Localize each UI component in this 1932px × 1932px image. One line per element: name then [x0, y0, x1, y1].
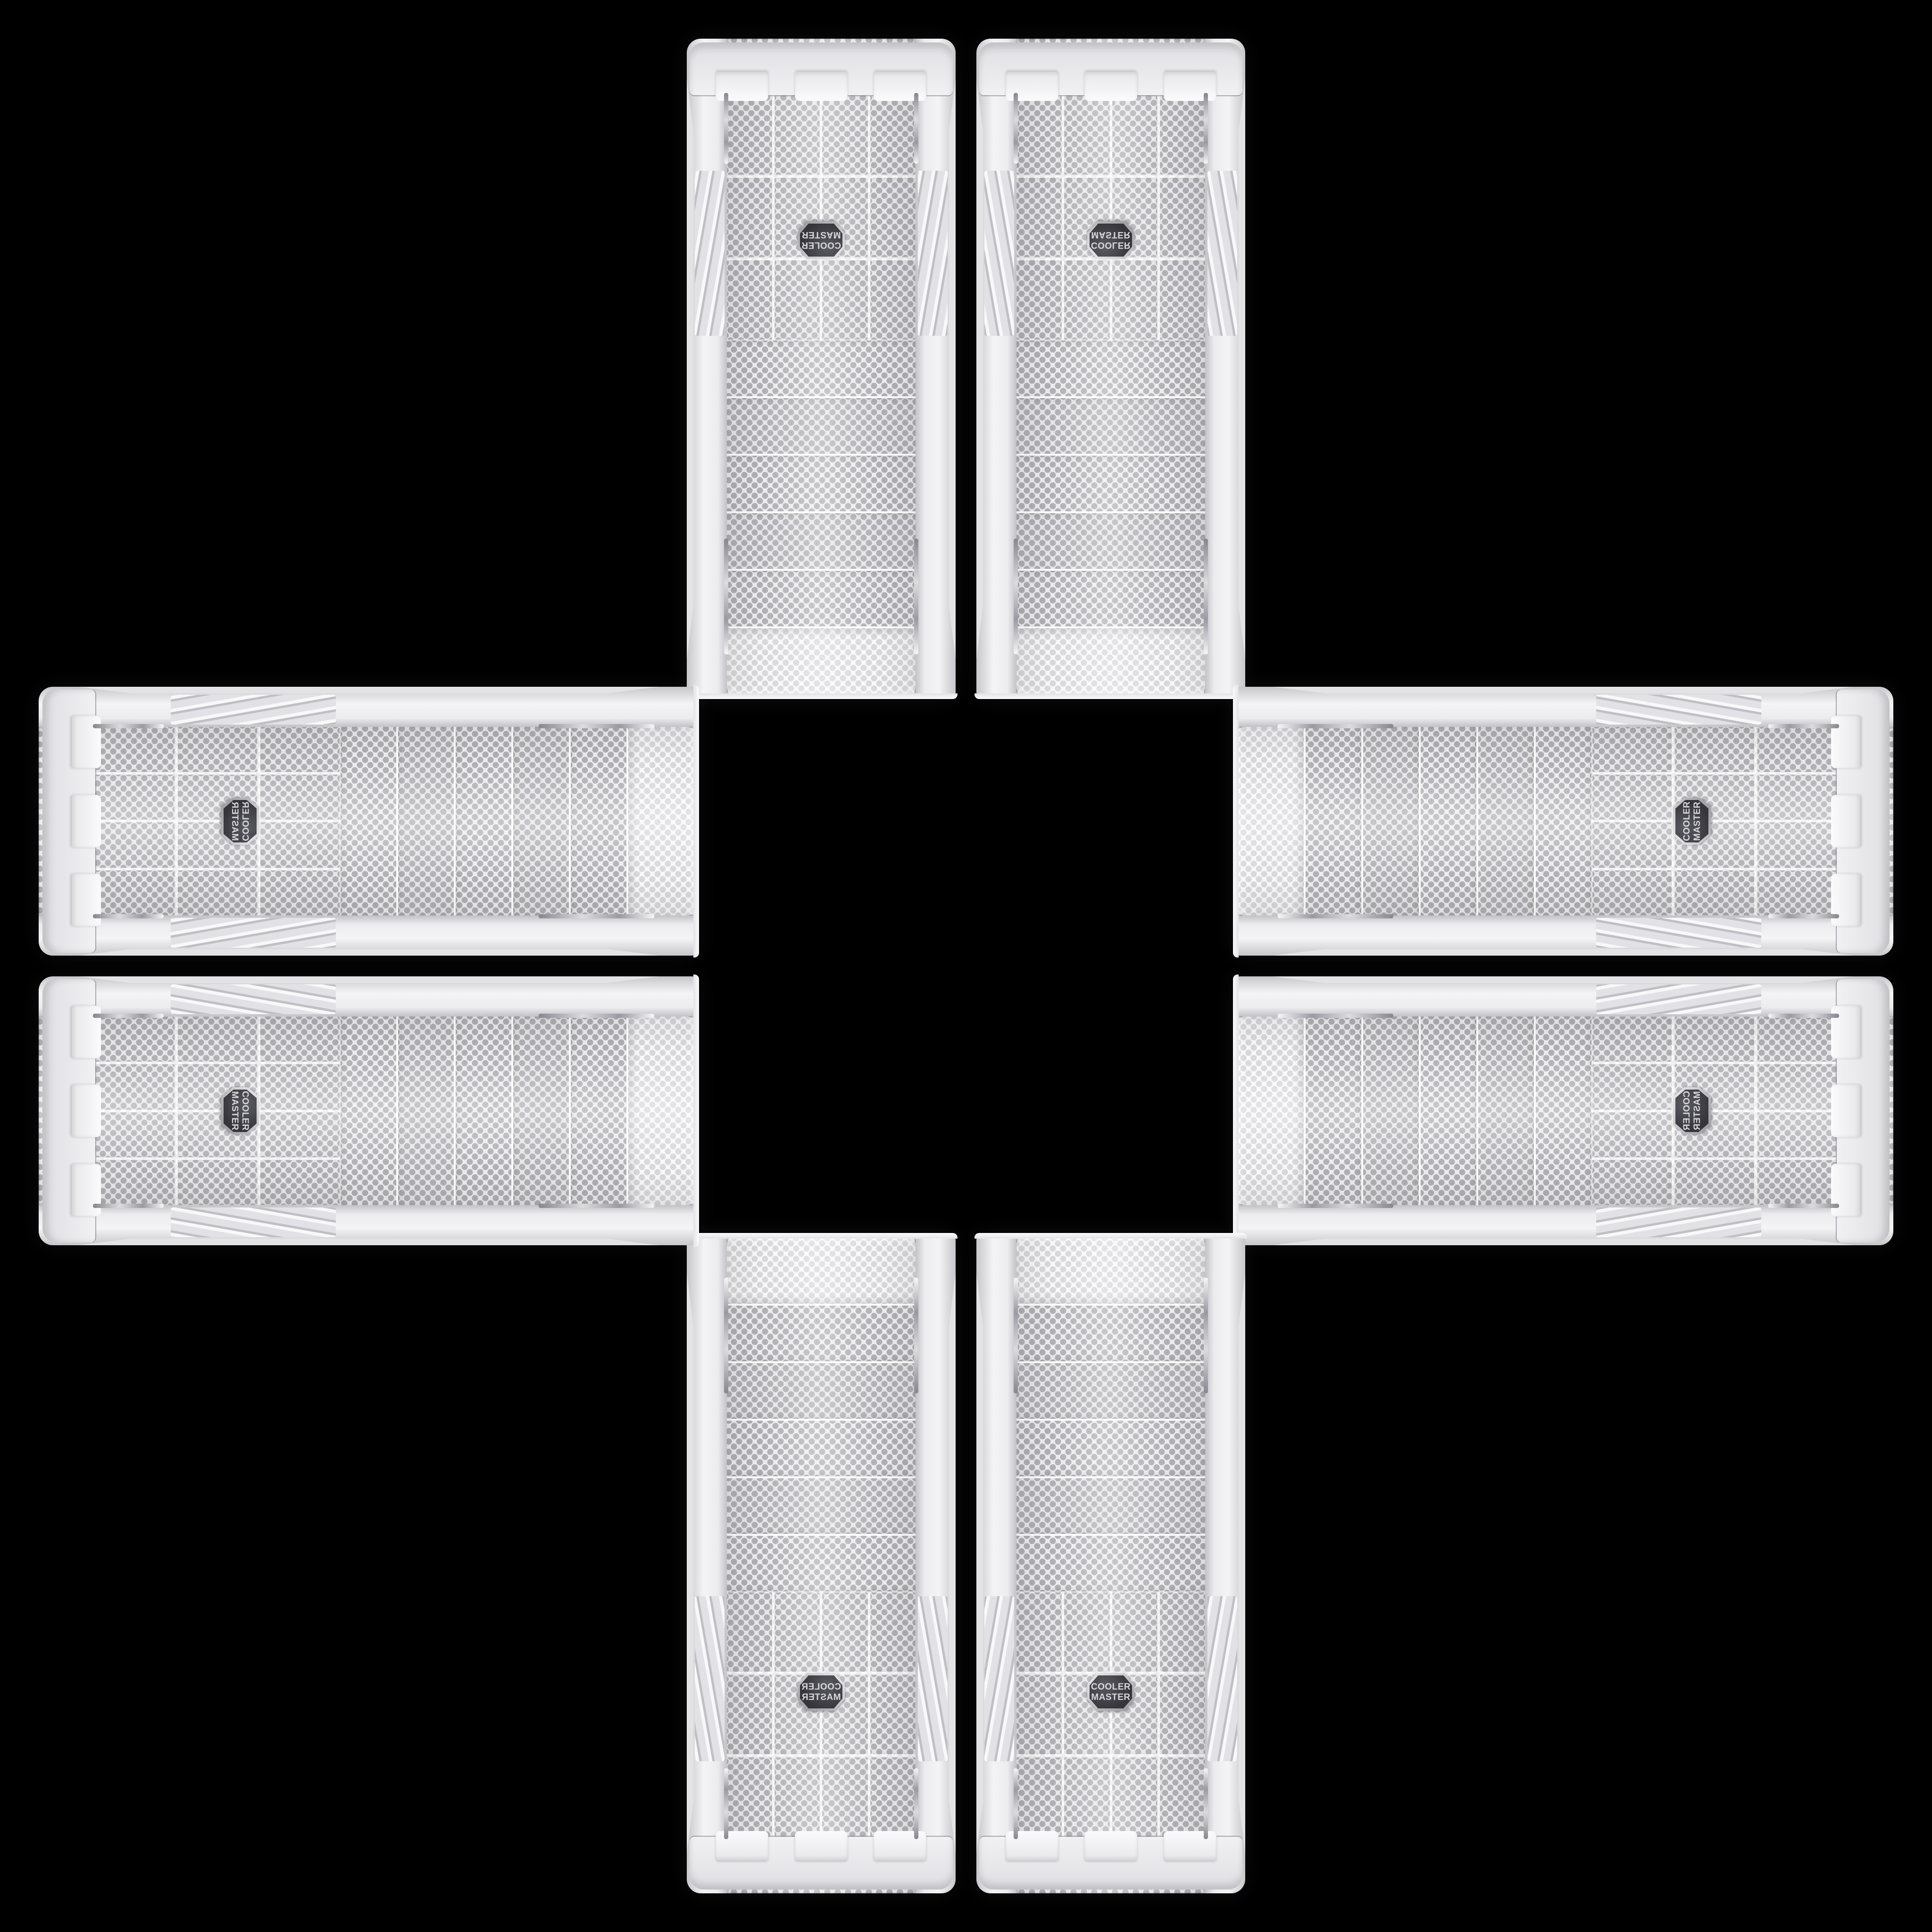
bay-grid-cell	[727, 1591, 772, 1672]
cap-tab	[1831, 874, 1860, 927]
bay-grid-cell	[870, 95, 916, 175]
grip-ribs-left	[1596, 918, 1761, 948]
mesh-field	[1233, 727, 1893, 916]
cooler-master-badge: COOLER MASTER	[1673, 1087, 1711, 1134]
bay-grid-cell	[823, 95, 868, 175]
drive-bay-band	[1361, 727, 1419, 916]
badge-face: COOLER MASTER	[224, 800, 257, 842]
bay-grid-cell	[823, 1757, 868, 1837]
chrome-accent	[1768, 724, 1839, 728]
drive-bay-band	[1016, 1419, 1205, 1476]
mesh-rolled-edge	[1233, 1016, 1304, 1205]
bay-grid-cell	[1757, 774, 1837, 820]
drive-bay-band	[1016, 571, 1205, 628]
chrome-accent	[93, 724, 164, 728]
cap-tab	[1831, 1164, 1860, 1216]
drive-bay-band	[513, 1016, 571, 1205]
badge-text-line1: COOLER	[241, 1091, 250, 1131]
mesh-rolled-edge	[727, 1233, 916, 1304]
inner-edge-strip	[974, 693, 1247, 699]
drive-bay-band	[1534, 727, 1591, 916]
drive-bay-band	[1476, 727, 1534, 916]
chrome-accent	[539, 914, 654, 918]
inner-edge-strip	[974, 1233, 1247, 1239]
bay-grid-cell	[260, 1160, 341, 1205]
bay-grid-cell	[823, 260, 868, 341]
bay-grid-cell	[1016, 178, 1062, 258]
drive-bay-band	[571, 727, 628, 916]
chrome-accent	[93, 1014, 164, 1018]
mesh-field	[39, 1016, 699, 1205]
mesh-bay-grid	[95, 1016, 341, 1205]
drive-bay-band	[727, 513, 916, 571]
bay-grid-cell	[95, 1160, 175, 1205]
cap-tab	[874, 72, 927, 101]
badge-text-line2: MASTER	[1091, 231, 1130, 240]
chrome-accent	[914, 539, 918, 654]
drive-bay-band	[727, 1304, 916, 1361]
bay-grid-cell	[870, 260, 916, 341]
bay-grid-cell	[1591, 727, 1672, 772]
inner-edge-strip	[685, 1233, 958, 1239]
cooler-master-badge: COOLER MASTER	[221, 1087, 259, 1134]
badge-face: COOLER MASTER	[1675, 1090, 1708, 1132]
badge-text-line1: COOLER	[801, 1682, 841, 1691]
drive-bay-band	[727, 571, 916, 628]
chrome-accent	[1278, 1204, 1393, 1208]
mesh-bay-grid	[95, 727, 341, 916]
chrome-accent	[914, 1278, 918, 1393]
chrome-accent	[1768, 914, 1839, 918]
badge-face: COOLER MASTER	[1675, 800, 1708, 842]
cap-tab	[1164, 1831, 1216, 1860]
bay-grid-cell	[1757, 870, 1837, 916]
scene-root: COOLER MASTER	[0, 0, 1932, 1932]
mesh-bands	[727, 341, 916, 628]
badge-text-line2: MASTER	[231, 801, 240, 841]
bay-grid-cell	[178, 1016, 258, 1062]
bay-grid-cell	[1674, 1016, 1754, 1062]
grip-ribs-right	[695, 171, 724, 336]
bay-grid-cell	[178, 1160, 258, 1205]
chrome-accent	[914, 1768, 918, 1839]
mesh-bay-grid	[1016, 1591, 1205, 1837]
bay-grid-cell	[1112, 1591, 1158, 1672]
bay-grid-cell	[727, 1757, 772, 1837]
drive-bay-band	[1016, 1476, 1205, 1534]
drive-bay-band	[398, 727, 456, 916]
chrome-accent	[1278, 724, 1393, 728]
bay-grid-cell	[1160, 178, 1205, 258]
bay-grid-cell	[95, 1064, 175, 1109]
chrome-accent	[1278, 1014, 1393, 1018]
chrome-accent	[1278, 914, 1393, 918]
bay-grid-cell	[1674, 727, 1754, 772]
cap-tab	[1831, 795, 1860, 848]
bay-grid-cell	[95, 1016, 175, 1062]
bay-grid-cell	[1757, 727, 1837, 772]
mesh-rolled-edge	[1016, 1233, 1205, 1304]
case-front-panel-bottom-left: COOLER MASTER	[687, 1233, 956, 1893]
chrome-accent	[724, 1278, 728, 1393]
case-front-panel-right-lower: COOLER MASTER	[1233, 976, 1893, 1245]
cap-tab	[1831, 1084, 1860, 1137]
bay-grid-cell	[1112, 95, 1158, 175]
mesh-rolled-edge	[628, 727, 699, 916]
outer-cap	[42, 979, 95, 1242]
bay-grid-cell	[1112, 1757, 1158, 1837]
grip-ribs-right	[695, 1596, 724, 1761]
chrome-accent	[1014, 1768, 1018, 1839]
grip-ribs-right	[1596, 1207, 1761, 1237]
case-front-panel-right-upper: COOLER MASTER	[1233, 687, 1893, 956]
drive-bay-band	[1534, 1016, 1591, 1205]
bay-grid-cell	[95, 774, 175, 820]
badge-text-line2: MASTER	[801, 231, 841, 240]
mesh-bands	[1016, 341, 1205, 628]
drive-bay-band	[727, 1419, 916, 1476]
bay-grid-cell	[1160, 1674, 1205, 1754]
mesh-bands	[341, 727, 628, 916]
mesh-field	[1016, 1233, 1205, 1893]
drive-bay-band	[1016, 513, 1205, 571]
chrome-accent	[93, 914, 164, 918]
case-front-panel-left-upper: COOLER MASTER	[39, 687, 699, 956]
chrome-accent	[724, 1768, 728, 1839]
badge-text-line2: MASTER	[1091, 1693, 1130, 1702]
chrome-accent	[1014, 539, 1018, 654]
chrome-accent	[914, 93, 918, 164]
chrome-accent	[539, 1204, 654, 1208]
bay-grid-cell	[1016, 1757, 1062, 1837]
drive-bay-band	[727, 1361, 916, 1419]
drive-bay-band	[456, 727, 513, 916]
outer-cap	[979, 42, 1242, 95]
case-front-panel-bottom-right: COOLER MASTER	[976, 1233, 1245, 1893]
drive-bay-band	[1476, 1016, 1534, 1205]
drive-bay-band	[1016, 398, 1205, 456]
bay-grid-cell	[260, 823, 341, 868]
drive-bay-band	[1361, 1016, 1419, 1205]
bay-grid-cell	[823, 1591, 868, 1672]
grip-ribs-right	[1596, 695, 1761, 724]
mesh-bands	[341, 1016, 628, 1205]
outer-cap	[1837, 979, 1890, 1242]
bay-grid-cell	[1591, 774, 1672, 820]
bay-grid-cell	[260, 1016, 341, 1062]
bay-grid-cell	[178, 727, 258, 772]
mesh-field	[1233, 1016, 1893, 1205]
badge-text-line2: MASTER	[231, 1091, 240, 1130]
drive-bay-band	[727, 398, 916, 456]
cap-tab	[72, 874, 101, 927]
grip-ribs-left	[984, 171, 1014, 336]
drive-bay-band	[1419, 727, 1476, 916]
bay-grid-cell	[260, 1112, 341, 1158]
mesh-field	[39, 727, 699, 916]
badge-text-line2: MASTER	[1693, 801, 1702, 841]
grip-ribs-left	[918, 1596, 948, 1761]
badge-text-line1: COOLER	[801, 241, 841, 250]
outer-cap	[690, 42, 953, 95]
bay-grid-cell	[260, 1064, 341, 1109]
mesh-bands	[1304, 1016, 1591, 1205]
grip-ribs-left	[171, 918, 336, 948]
badge-text-line1: COOLER	[1091, 241, 1131, 250]
case-front-panel-top-left: COOLER MASTER	[687, 39, 956, 699]
bay-grid-cell	[1016, 260, 1062, 341]
drive-bay-band	[1016, 341, 1205, 398]
bay-grid-cell	[1591, 1016, 1672, 1062]
mesh-bay-grid	[1591, 1016, 1837, 1205]
drive-bay-band	[513, 727, 571, 916]
drive-bay-band	[1016, 456, 1205, 513]
cap-tab	[1084, 72, 1137, 101]
bay-grid-cell	[1160, 95, 1205, 175]
drive-bay-band	[571, 1016, 628, 1205]
cap-tab	[72, 1164, 101, 1216]
inner-edge-strip	[1233, 974, 1239, 1247]
bay-grid-cell	[727, 1674, 772, 1754]
badge-face: COOLER MASTER	[1090, 1675, 1132, 1708]
bay-grid-cell	[260, 727, 341, 772]
badge-face: COOLER MASTER	[800, 224, 842, 257]
grip-ribs-right	[171, 695, 336, 724]
bay-grid-cell	[774, 260, 820, 341]
bay-grid-cell	[1674, 870, 1754, 916]
chrome-accent	[539, 1014, 654, 1018]
bay-grid-cell	[1160, 260, 1205, 341]
outer-cap	[690, 1837, 953, 1890]
outer-cap	[1837, 690, 1890, 953]
badge-text-line1: COOLER	[1091, 1682, 1131, 1691]
chrome-accent	[539, 724, 654, 728]
grip-ribs-left	[1596, 984, 1761, 1014]
grip-ribs-right	[171, 1207, 336, 1237]
bay-grid-cell	[870, 1591, 916, 1672]
cap-tab	[795, 1831, 848, 1860]
grip-ribs-left	[984, 1596, 1014, 1761]
bay-grid-cell	[870, 178, 916, 258]
bay-grid-cell	[1016, 95, 1062, 175]
cap-tab	[72, 1084, 101, 1137]
cap-tab	[72, 795, 101, 848]
cooler-master-badge: COOLER MASTER	[1087, 221, 1134, 259]
badge-text-line2: MASTER	[1693, 1091, 1702, 1130]
drive-bay-band	[727, 1534, 916, 1591]
chrome-accent	[724, 93, 728, 164]
drive-bay-band	[1016, 1304, 1205, 1361]
mesh-bay-grid	[727, 95, 916, 341]
mesh-rolled-edge	[1016, 628, 1205, 699]
bay-grid-cell	[1064, 95, 1109, 175]
mesh-bands	[727, 1304, 916, 1591]
cooler-master-badge: COOLER MASTER	[1087, 1673, 1134, 1711]
bay-grid-cell	[1160, 1757, 1205, 1837]
bay-grid-cell	[870, 1674, 916, 1754]
chrome-accent	[1014, 93, 1018, 164]
bay-grid-cell	[1591, 823, 1672, 868]
cap-tab	[1164, 72, 1216, 101]
mesh-field	[727, 1233, 916, 1893]
badge-text-line1: COOLER	[1682, 1091, 1691, 1131]
inner-edge-strip	[1233, 685, 1239, 958]
bay-grid-cell	[1757, 1160, 1837, 1205]
chrome-accent	[1204, 539, 1208, 654]
mesh-field	[727, 39, 916, 699]
mesh-rolled-edge	[1233, 727, 1304, 916]
cap-tab	[874, 1831, 927, 1860]
chrome-accent	[1204, 1768, 1208, 1839]
cooler-master-badge: COOLER MASTER	[221, 798, 259, 845]
cap-tab	[795, 72, 848, 101]
bay-grid-cell	[95, 823, 175, 868]
bay-grid-cell	[95, 870, 175, 916]
bay-grid-cell	[1016, 1674, 1062, 1754]
mesh-bands	[1016, 1304, 1205, 1591]
bay-grid-cell	[178, 870, 258, 916]
drive-bay-band	[1304, 1016, 1361, 1205]
chrome-accent	[1014, 1278, 1018, 1393]
bay-grid-cell	[1064, 260, 1109, 341]
outer-cap	[979, 1837, 1242, 1890]
cooler-master-badge: COOLER MASTER	[1673, 798, 1711, 845]
bay-grid-cell	[1160, 1591, 1205, 1672]
chrome-accent	[1204, 1278, 1208, 1393]
bay-grid-cell	[1591, 1112, 1672, 1158]
inner-edge-strip	[693, 685, 699, 958]
mesh-bay-grid	[1591, 727, 1837, 916]
case-front-panel-top-right: COOLER MASTER	[976, 39, 1245, 699]
bay-grid-cell	[1757, 1016, 1837, 1062]
bay-grid-cell	[727, 260, 772, 341]
mesh-rolled-edge	[628, 1016, 699, 1205]
bay-grid-cell	[1064, 1591, 1109, 1672]
badge-text-line1: COOLER	[241, 801, 250, 841]
badge-text-line1: COOLER	[1682, 801, 1691, 841]
badge-text-line2: MASTER	[801, 1693, 841, 1702]
cooler-master-badge: COOLER MASTER	[798, 221, 845, 259]
bay-grid-cell	[727, 178, 772, 258]
drive-bay-band	[1304, 727, 1361, 916]
mesh-bands	[1304, 727, 1591, 916]
cap-tab	[1084, 1831, 1137, 1860]
drive-bay-band	[1016, 1534, 1205, 1591]
bay-grid-cell	[1674, 1160, 1754, 1205]
grip-ribs-left	[171, 984, 336, 1014]
chrome-accent	[1768, 1204, 1839, 1208]
badge-face: COOLER MASTER	[1090, 224, 1132, 257]
bay-grid-cell	[1757, 1112, 1837, 1158]
bay-grid-cell	[1591, 1160, 1672, 1205]
inner-edge-strip	[693, 974, 699, 1247]
drive-bay-band	[1016, 1361, 1205, 1419]
bay-grid-cell	[774, 95, 820, 175]
drive-bay-band	[1419, 1016, 1476, 1205]
bay-grid-cell	[1591, 1064, 1672, 1109]
drive-bay-band	[398, 1016, 456, 1205]
badge-face: COOLER MASTER	[224, 1090, 257, 1132]
outer-cap	[42, 690, 95, 953]
grip-ribs-right	[1207, 1596, 1237, 1761]
chrome-accent	[1768, 1014, 1839, 1018]
drive-bay-band	[727, 341, 916, 398]
bay-grid-cell	[1757, 823, 1837, 868]
bay-grid-cell	[260, 774, 341, 820]
inner-edge-strip	[685, 693, 958, 699]
chrome-accent	[1204, 93, 1208, 164]
bay-grid-cell	[774, 1757, 820, 1837]
bay-grid-cell	[727, 95, 772, 175]
drive-bay-band	[341, 1016, 398, 1205]
grip-ribs-right	[1207, 171, 1237, 336]
drive-bay-band	[341, 727, 398, 916]
mesh-bay-grid	[727, 1591, 916, 1837]
mesh-rolled-edge	[727, 628, 916, 699]
bay-grid-cell	[260, 870, 341, 916]
chrome-accent	[724, 539, 728, 654]
drive-bay-band	[727, 1476, 916, 1534]
bay-grid-cell	[1064, 1757, 1109, 1837]
mesh-bay-grid	[1016, 95, 1205, 341]
bay-grid-cell	[774, 1591, 820, 1672]
cooler-master-badge: COOLER MASTER	[798, 1673, 845, 1711]
bay-grid-cell	[1757, 1064, 1837, 1109]
drive-bay-band	[727, 456, 916, 513]
bay-grid-cell	[95, 1112, 175, 1158]
bay-grid-cell	[1591, 870, 1672, 916]
bay-grid-cell	[870, 1757, 916, 1837]
chrome-accent	[93, 1204, 164, 1208]
mesh-field	[1016, 39, 1205, 699]
bay-grid-cell	[95, 727, 175, 772]
drive-bay-band	[456, 1016, 513, 1205]
case-front-panel-left-lower: COOLER MASTER	[39, 976, 699, 1245]
badge-face: COOLER MASTER	[800, 1675, 842, 1708]
bay-grid-cell	[1016, 1591, 1062, 1672]
bay-grid-cell	[1112, 260, 1158, 341]
grip-ribs-left	[918, 171, 948, 336]
